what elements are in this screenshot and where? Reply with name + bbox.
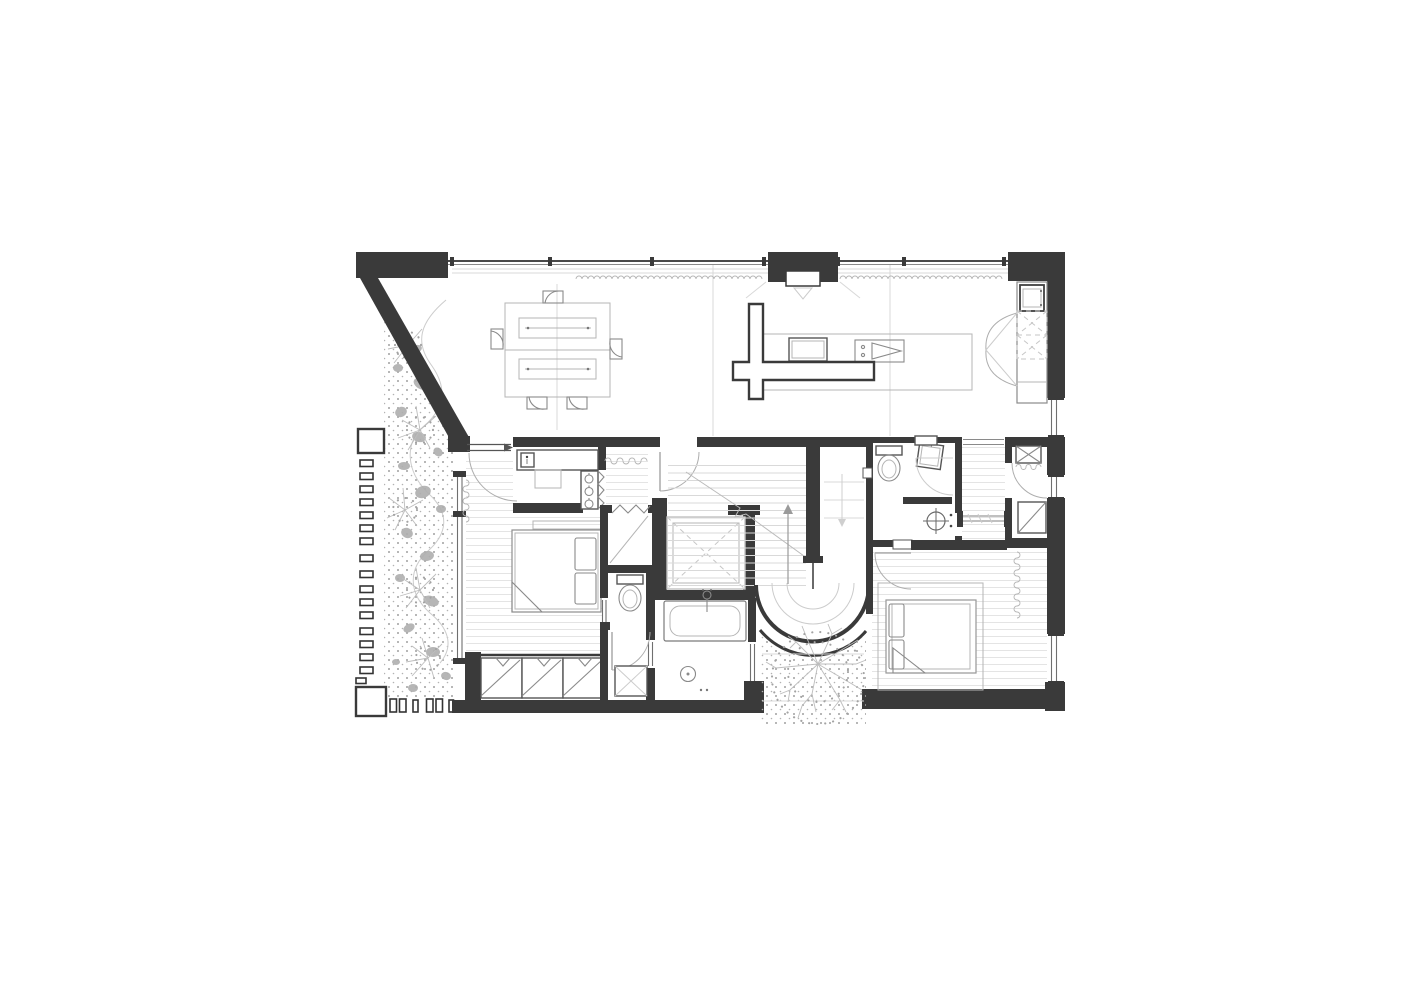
shower	[923, 508, 952, 534]
east-wall	[1047, 498, 1065, 634]
wc-shaft-column	[600, 505, 656, 700]
wall-niche	[863, 468, 872, 478]
courtyard	[760, 624, 866, 724]
entry-jamb	[448, 436, 470, 452]
double-bed-master	[512, 521, 601, 612]
curtain-scallops-east	[840, 276, 1002, 279]
toilet-wc	[617, 575, 643, 611]
tall-cabinet	[986, 282, 1047, 403]
chair	[567, 397, 587, 409]
wall	[748, 598, 756, 642]
fence-slats-south	[390, 699, 454, 712]
wall	[600, 505, 608, 598]
corridor-window	[963, 440, 1004, 445]
east-wall-upper	[1047, 281, 1065, 398]
duct-shaft-diagonal	[610, 516, 648, 563]
chair	[543, 291, 563, 303]
shower-partition	[903, 497, 952, 504]
washing-machine	[1016, 446, 1041, 470]
chair	[610, 339, 622, 359]
stair-treads	[668, 462, 806, 586]
shelf	[915, 436, 937, 445]
wall	[652, 498, 667, 600]
fence-post-top	[358, 429, 384, 453]
northwest-wall-block	[356, 252, 448, 278]
hall-north-wall	[697, 437, 866, 447]
floor-plan-page	[0, 0, 1416, 1000]
pier-notch	[786, 271, 820, 286]
partition-wall	[598, 447, 606, 470]
stair-spine-wall	[806, 437, 820, 559]
spine-cap	[803, 556, 823, 563]
chair	[491, 329, 503, 349]
toilet-bathroom	[876, 446, 902, 481]
entry-sliding-door	[467, 444, 513, 452]
northeast-wall-block	[1008, 252, 1065, 281]
curtain-scallops-west	[576, 276, 762, 279]
threshold	[893, 540, 912, 549]
double-bed-2	[886, 600, 976, 673]
floor-plan-canvas	[0, 0, 1416, 1000]
chair	[527, 397, 547, 409]
closet-sliding-doors	[467, 655, 604, 698]
fence-post-bottom	[356, 687, 386, 716]
shower-room-fixture	[615, 666, 647, 696]
south-wall-east	[862, 689, 1065, 709]
wall	[1005, 498, 1012, 538]
partition-wall	[513, 503, 583, 513]
wall	[1005, 443, 1012, 463]
south-wall-west	[452, 700, 764, 713]
door-swing	[612, 632, 650, 670]
east-corridor-floor	[962, 447, 1005, 540]
cooktop	[855, 340, 904, 362]
handrail-arc	[772, 583, 854, 624]
east-wall	[1047, 437, 1065, 475]
family-bathroom	[664, 589, 756, 691]
closet-west-wall	[465, 652, 481, 700]
wall	[911, 540, 1007, 550]
appliance	[1018, 502, 1046, 533]
door-swing	[1012, 463, 1047, 498]
north-facade	[448, 252, 1044, 299]
upper-flight-faint	[824, 474, 864, 527]
partition-wall	[513, 437, 660, 447]
folding-door	[612, 505, 650, 513]
wall	[600, 628, 608, 700]
wall	[955, 443, 962, 513]
diffuser-triangle	[794, 288, 812, 299]
wall	[1005, 538, 1065, 548]
fence-slats	[356, 460, 373, 684]
